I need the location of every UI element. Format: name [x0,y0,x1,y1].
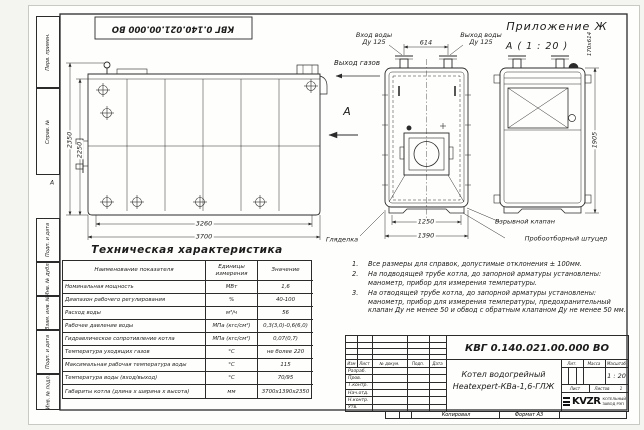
margin-box: Взам. инв. № [36,296,60,330]
tb-doc-number: КВГ 0.140.021.00.000 ВО [446,343,628,354]
tb-scale-label: Масштаб [605,361,628,366]
kvzr-logo: KVZR КОТЕЛЬНЫЙЗАВОД РЭП [562,393,627,410]
note-item: 3.На отводящей трубе котла, до запорной … [352,289,628,316]
tb-row-razrab: Разраб. [348,369,366,374]
margin-label: Инв. № подл. [45,375,51,410]
callout-explosion-valve: Взрывной клапан [495,218,555,225]
tb-row-nachotd: Нач.отд. [348,391,369,396]
side-view-dims [66,63,320,240]
dim-opening-size: 170х614 [587,32,593,56]
spec-table-cell: 115 [258,359,313,372]
spec-table-row: Температура воды (вход/выход)°С70/95 [63,372,311,385]
note-item: 1.Все размеры для справок, допустимые от… [352,260,628,269]
tb-mass-label: Масса [583,361,605,366]
note-item: 2.На подводящей трубе котла, до запорной… [352,270,628,288]
tb-sheets-label: Листов [590,386,614,391]
spec-header-units: Единицы измерения [206,261,258,281]
tb-scale-value: 1 : 20 [605,372,628,380]
margin-label: Справ. № [45,119,51,143]
kvzr-logo-sub1: КОТЕЛЬНЫЙ [602,397,626,401]
margin-label: Перв. примен. [45,33,51,71]
spec-table-row: Температура уходящих газов°Сне более 220 [63,346,311,359]
tb-sheets-value: 1 [616,386,626,391]
tb-col-data: Дата [429,361,446,366]
rear-view [494,56,591,213]
title-block: Изм Лист № докум. Подп. Дата Разраб. Про… [345,335,629,412]
kvzr-logo-icon [563,397,570,406]
spec-table-cell: °С [206,359,258,372]
spec-table-cell: 3700х1390х2350 [258,385,313,398]
fold-mark: А [50,181,54,188]
margin-label: Подп. и дата [45,335,51,369]
top-stamp-number: КВГ 0.140.021.00.000 ВО [112,23,234,32]
spec-table-row: Гидравлическое сопротивление котлаМПа (к… [63,333,311,346]
spec-table: Наименование показателя Единицы измерени… [62,260,312,399]
spec-table-row: Номинальная мощностьМВт1,6 [63,281,311,294]
side-view [76,62,327,215]
section-arrow-label: А [343,106,351,118]
target-marks [96,79,318,209]
callout-water-outlet-dn: Ду 125 [460,39,501,46]
margin-box: Инв. № дубл. [36,262,60,296]
spec-table-cell: Диапазон рабочего регулирования [63,294,206,307]
tb-col-izm: Изм [346,361,357,366]
spec-table-cell: м³/ч [206,307,258,320]
spec-table-title: Техническая характеристика [91,245,282,257]
spec-table-cell: МВт [206,281,258,294]
tb-row-utv: Утв. [348,405,358,410]
margin-label: Подп. и дата [45,223,51,257]
spec-table-cell: 56 [258,307,313,320]
spec-table-cell: 40-100 [258,294,313,307]
tb-sheet-label: Лист [561,386,589,391]
front-view-dims [360,44,505,239]
spec-header-value: Значение [258,261,313,281]
tb-col-list: Лист [357,361,372,366]
margin-label: Взам. инв. № [45,296,51,330]
callout-sight-glass: Гляделка [326,236,358,243]
spec-table-cell: Номинальная мощность [63,281,206,294]
tb-col-podp: Подп. [407,361,429,366]
spec-table-row: Габариты котла (длина х ширина х высота)… [63,385,311,398]
kvzr-logo-sub2: ЗАВОД РЭП [602,402,626,406]
spec-header-name: Наименование показателя [63,261,206,281]
tb-lit-label: Лит. [561,361,583,366]
tb-row-nkontr: Н.контр. [348,398,369,403]
dim-body-height: 2250 [76,141,83,160]
tb-col-dokum: № докум. [372,361,407,366]
copied-label: Копировал [416,412,496,418]
dim-overall-length: 3700 [195,233,214,240]
dim-body-length: 3260 [195,220,214,227]
tb-product-name-1: Котел водогрейный [446,369,561,381]
spec-table-cell: Гидравлическое сопротивление котла [63,333,206,346]
detail-view-label: А ( 1 : 20 ) [506,42,568,52]
spec-table-row: Максимальная рабочая температура воды°С1… [63,359,311,372]
spec-table-cell: мм [206,385,258,398]
notes-list: 1.Все размеры для справок, допустимые от… [352,260,628,316]
format-label: Формат А3 [501,412,557,418]
spec-table-cell: % [206,294,258,307]
spec-table-cell: не более 220 [258,346,313,359]
kvzr-logo-text: KVZR [572,396,600,407]
spec-table-header: Наименование показателя Единицы измерени… [63,261,311,281]
spec-table-cell: °С [206,346,258,359]
tb-row-tkontr: Т.контр. [348,383,368,388]
margin-label: Инв. № дубл. [45,262,51,296]
spec-table-cell: Температура воды (вход/выход) [63,372,206,385]
dim-overall-height: 2350 [66,131,73,150]
spec-table-cell: МПа (кгс/см²) [206,333,258,346]
callout-gas-outlet: Выход газов [334,60,380,68]
spec-table-cell: 0,07(0,7) [258,333,313,346]
spec-table-cell: 0,3(3,0)-0,6(6,0) [258,320,313,333]
tb-product-name-2: Heatexpert-КВа-1,6-ГЛЖ [446,381,561,393]
spec-table-cell: Температура уходящих газов [63,346,206,359]
margin-box: Перв. примен. [36,16,60,88]
spec-table-cell: МПа (кгс/см²) [206,320,258,333]
callout-sampling-fitting: Пробоотборный штуцер [525,235,608,242]
dim-body-width: 1250 [417,218,436,225]
margin-box: Справ. № [36,88,60,175]
spec-table-cell: Габариты котла (длина х ширина х высота) [63,385,206,398]
spec-table-cell: Расход воды [63,307,206,320]
spec-table-cell: 1,6 [258,281,313,294]
tb-row-prov: Пров. [348,376,361,381]
spec-table-row: Рабочее давление водыМПа (кгс/см²)0,3(3,… [63,320,311,333]
spec-table-cell: 70/95 [258,372,313,385]
margin-box: Подп. и дата [36,218,60,262]
spec-table-row: Диапазон рабочего регулирования%40-100 [63,294,311,307]
spec-table-cell: Максимальная рабочая температура воды [63,359,206,372]
spec-table-cell: °С [206,372,258,385]
dim-rear-height: 1905 [591,131,598,150]
spec-table-row: Расход водым³/ч56 [63,307,311,320]
dim-nozzle-spacing: 614 [419,39,433,46]
margin-box: Инв. № подл. [36,374,60,410]
dim-overall-width: 1390 [417,232,436,239]
front-view [382,56,471,220]
callout-water-inlet-dn: Ду 125 [356,39,392,46]
margin-box: Подп. и дата [36,330,60,374]
drawing-sheet: КВГ 0.140.021.00.000 ВО Перв. примен. Сп… [0,0,644,430]
bottom-strip: Копировал Формат А3 [385,411,627,419]
spec-table-cell: Рабочее давление воды [63,320,206,333]
